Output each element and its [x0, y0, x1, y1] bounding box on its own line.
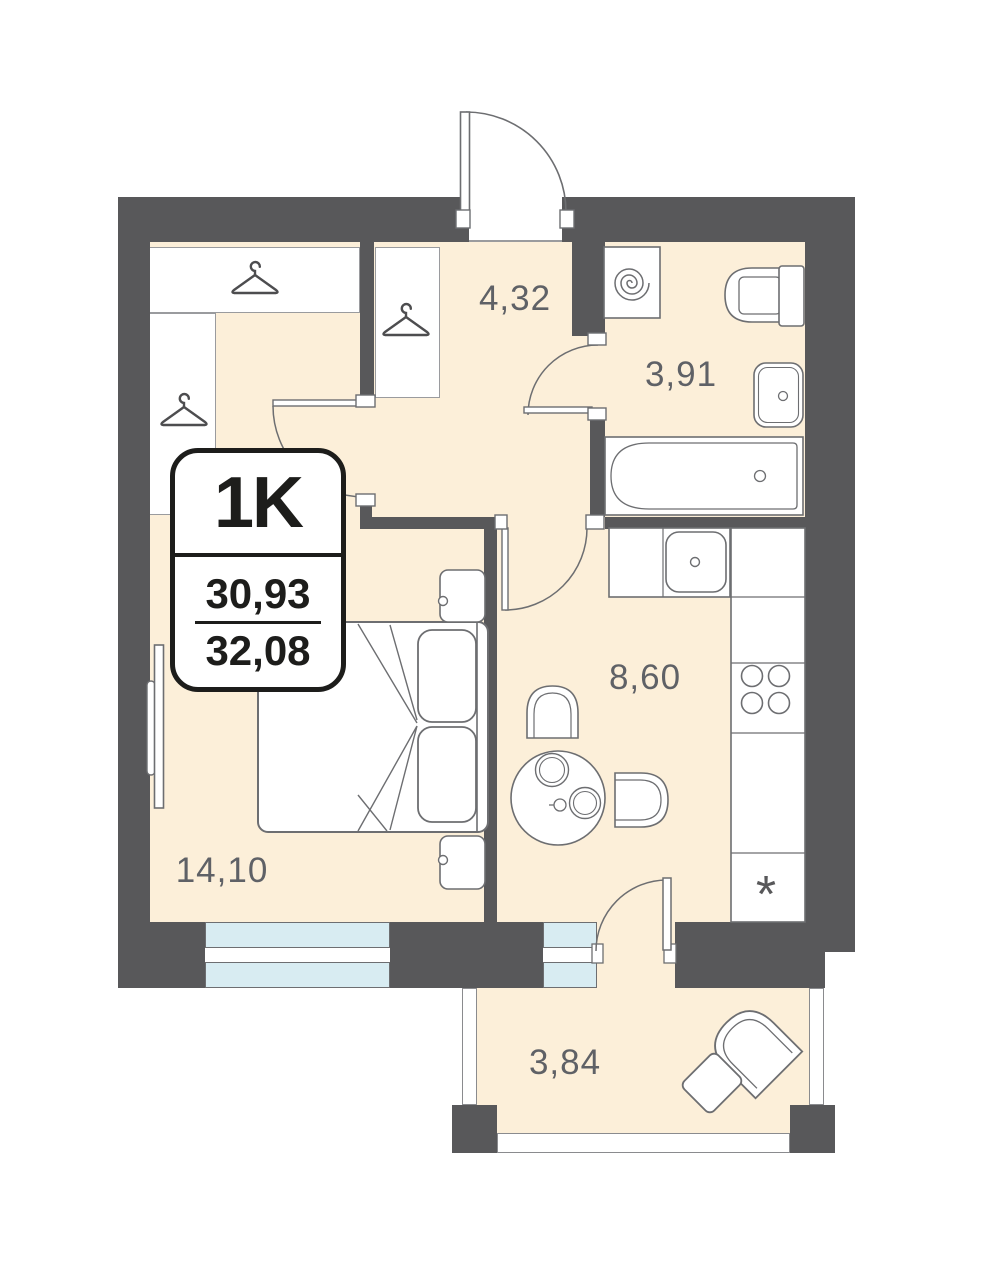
dining-table	[511, 686, 668, 845]
apartment-type: 1K	[214, 462, 302, 544]
room-label-hallway: 4,32	[479, 279, 551, 319]
washing-machine	[604, 247, 660, 318]
total-area-value: 32,08	[205, 630, 310, 672]
tv-console	[147, 645, 164, 808]
room-label-kitchen: 8,60	[609, 658, 681, 698]
hanger-icon	[233, 262, 278, 293]
badge-type-section: 1K	[175, 453, 341, 557]
balcony-door	[592, 878, 676, 963]
nightstand-top	[439, 570, 486, 622]
floor-plan: *	[0, 0, 994, 1271]
room-label-living-room: 14,10	[176, 851, 269, 891]
hanger-icon	[384, 304, 429, 335]
toilet	[725, 266, 804, 326]
kitchen-door	[495, 515, 604, 610]
entrance-door	[456, 112, 574, 228]
room-label-balcony: 3,84	[529, 1043, 601, 1083]
bathtub	[605, 437, 803, 515]
plan-line-art: *	[0, 0, 994, 1271]
living-area-value: 30,93	[205, 573, 310, 615]
fraction-line	[195, 621, 321, 624]
apartment-badge: 1K 30,93 32,08	[170, 448, 346, 692]
badge-area-section: 30,93 32,08	[175, 557, 341, 687]
nightstand-bottom	[439, 836, 486, 889]
bathroom-door	[524, 333, 606, 420]
hanger-icon	[162, 394, 207, 425]
fridge-asterisk-icon: *	[756, 866, 776, 924]
room-label-bathroom: 3,91	[645, 355, 717, 395]
bathroom-sink	[754, 363, 803, 427]
kitchen-sink-counter	[609, 528, 730, 597]
kitchen-counter-right	[731, 528, 805, 922]
